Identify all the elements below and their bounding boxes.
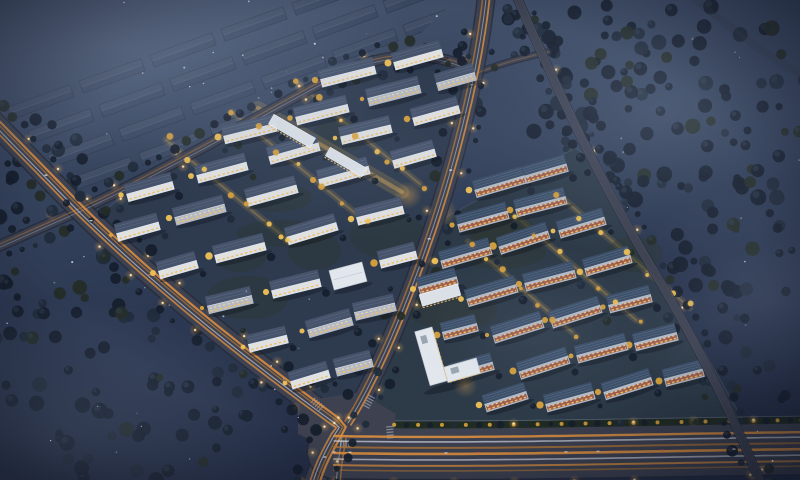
light-speck: [298, 348, 299, 349]
light-speck: [203, 83, 205, 85]
light-speck: [692, 38, 694, 40]
light-speck: [579, 361, 580, 362]
light-speck: [772, 460, 774, 462]
light-speck: [740, 217, 742, 219]
light-speck: [6, 322, 8, 324]
light-speck: [144, 287, 145, 288]
fog-layer: [0, 0, 800, 480]
light-speck: [283, 378, 285, 380]
light-speck: [523, 214, 525, 216]
light-speck: [136, 413, 137, 414]
aerial-night-rendering: [0, 0, 800, 480]
light-speck: [71, 261, 73, 263]
light-speck: [436, 15, 438, 17]
light-speck: [745, 324, 747, 326]
light-speck: [744, 261, 746, 263]
light-speck: [222, 315, 224, 317]
light-speck: [248, 1, 250, 3]
light-speck: [322, 57, 324, 59]
light-speck: [97, 406, 98, 407]
light-speck: [734, 51, 736, 53]
light-speck: [123, 2, 124, 3]
light-speck: [106, 133, 107, 134]
light-speck: [213, 52, 214, 53]
light-speck: [298, 417, 299, 418]
light-speck: [491, 217, 493, 219]
light-speck: [301, 147, 303, 149]
light-speck: [183, 67, 185, 69]
light-speck: [622, 151, 624, 153]
light-speck: [627, 207, 628, 208]
light-speck: [141, 426, 142, 427]
light-speck: [83, 256, 84, 257]
light-speck: [246, 290, 247, 291]
light-speck: [274, 389, 276, 391]
light-speck: [270, 365, 272, 367]
screenshot-root: [0, 0, 800, 480]
light-speck: [250, 344, 251, 345]
light-speck: [189, 458, 191, 460]
vignette: [0, 0, 800, 480]
light-speck: [366, 33, 367, 34]
light-speck: [50, 440, 51, 441]
light-speck: [757, 430, 758, 431]
light-speck: [271, 92, 272, 93]
light-speck: [142, 72, 144, 74]
light-speck: [168, 304, 170, 306]
light-speck: [242, 54, 244, 56]
light-speck: [620, 138, 622, 140]
light-speck: [116, 451, 118, 453]
light-speck: [286, 71, 287, 72]
light-speck: [308, 298, 310, 300]
light-speck: [189, 86, 190, 87]
light-speck: [271, 87, 273, 89]
light-speck: [314, 43, 316, 45]
light-speck: [739, 57, 740, 58]
light-speck: [258, 97, 260, 99]
light-speck: [53, 282, 55, 284]
light-speck: [477, 367, 478, 368]
